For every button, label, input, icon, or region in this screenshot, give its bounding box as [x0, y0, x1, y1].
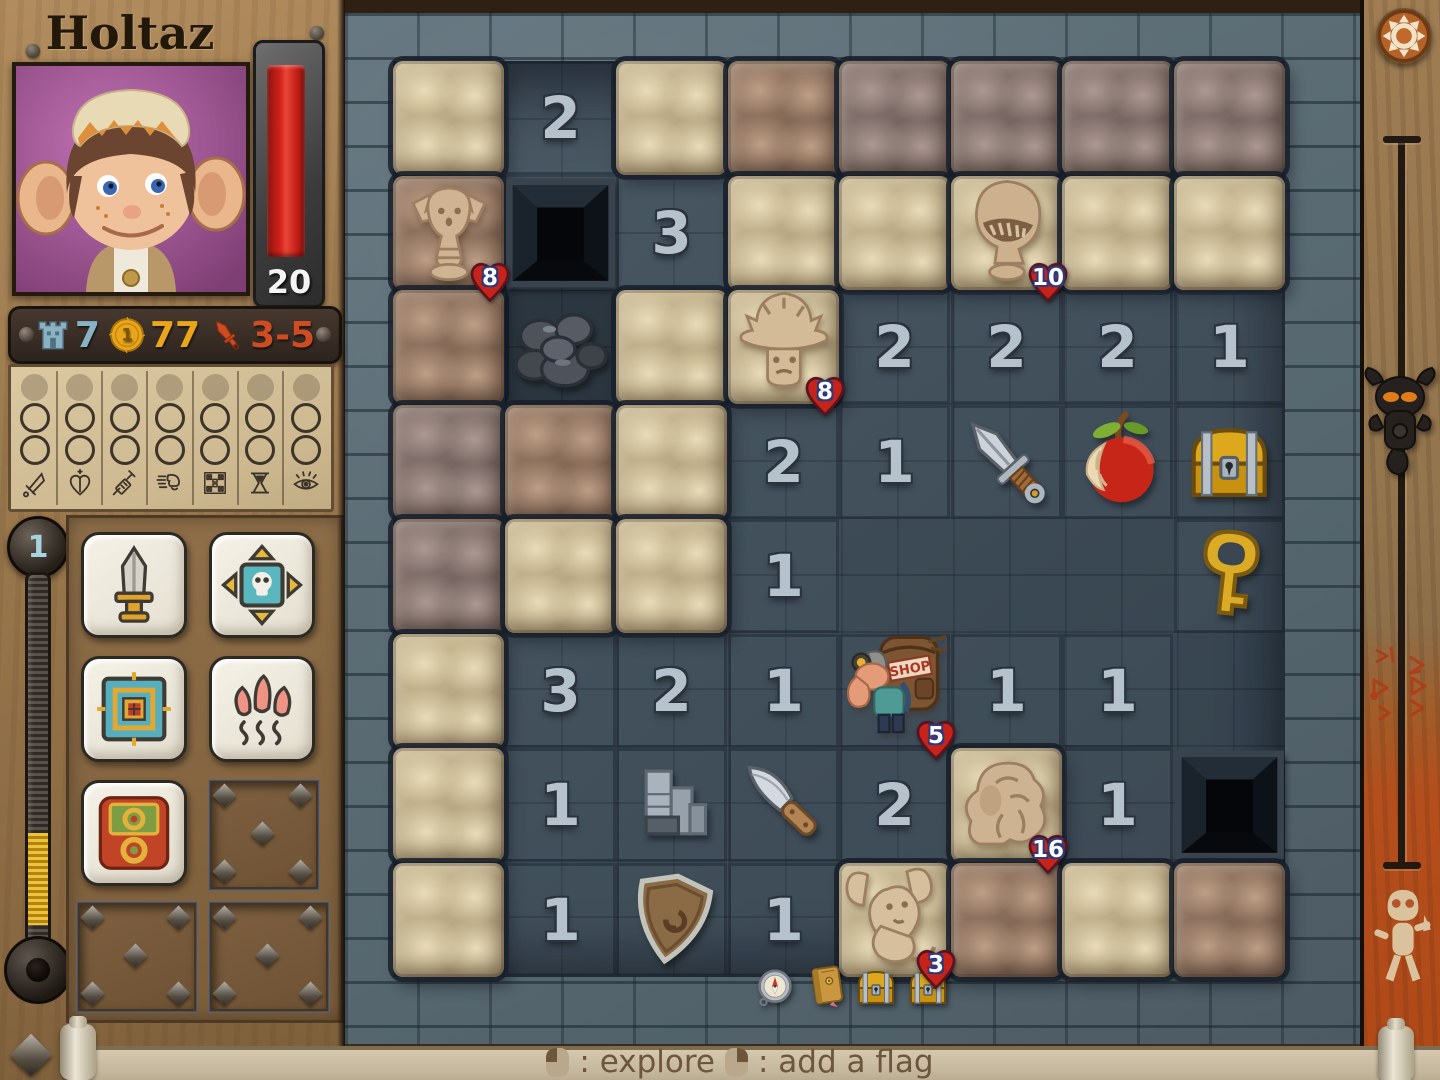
dagger-icon — [951, 405, 1062, 519]
adjacency-number: 1 — [763, 662, 803, 720]
adjacency-number: 1 — [1209, 318, 1249, 376]
skill-track-health-skill-icon — [58, 371, 103, 505]
tile-r5c7-empty — [1062, 519, 1173, 633]
tile-r2c6-monster-helm[interactable]: 10 — [951, 176, 1062, 290]
empty-card-slot — [209, 902, 329, 1012]
adjacency-number: 1 — [986, 662, 1026, 720]
skill-dot-ghost — [66, 374, 93, 401]
pyramid-stud-icon — [288, 859, 312, 883]
demon-slider-handle[interactable] — [1362, 366, 1438, 486]
tile-r3c4-monster-mush[interactable]: 8 — [728, 290, 839, 404]
tile-r7c3-item-stairs[interactable] — [616, 748, 727, 862]
tile-r2c7-hidden[interactable] — [1062, 176, 1173, 290]
tile-r7c1-hidden[interactable] — [393, 748, 504, 862]
skill-dot-ghost — [156, 374, 183, 401]
target-skill-card[interactable] — [81, 656, 187, 762]
tile-r2c5-hidden[interactable] — [839, 176, 950, 290]
skill-track-trap-skill-icon — [194, 371, 239, 505]
hp-badge: 5 — [912, 718, 960, 762]
pit-icon — [505, 176, 616, 290]
skill-dot — [291, 435, 321, 465]
skill-track-vision-skill-icon — [284, 371, 329, 505]
xp-rod-end-knob — [4, 936, 72, 1004]
controls-hint: : explore : add a flag — [420, 1044, 1060, 1080]
tile-r5c5-empty — [839, 519, 950, 633]
speed-skill-icon — [153, 468, 187, 498]
chalk-doll-icon — [1374, 888, 1432, 994]
tile-r3c5-number: 2 — [839, 290, 950, 404]
tile-r1c5-hidden[interactable] — [839, 61, 950, 175]
tile-r7c6-monster-troll[interactable]: 16 — [951, 748, 1062, 862]
skill-dot-ghost — [247, 374, 274, 401]
settings-gear-button[interactable] — [1376, 8, 1432, 64]
health-bar: 20 — [253, 40, 325, 308]
hp-badge: 3 — [912, 947, 960, 991]
hp-badge: 8 — [466, 260, 514, 304]
empty-card-slot — [77, 902, 197, 1012]
skill-track-potion-skill-icon — [103, 371, 148, 505]
tile-r6c1-hidden[interactable] — [393, 634, 504, 748]
tile-r7c2-number: 1 — [505, 748, 616, 862]
empty-card-slot — [209, 780, 319, 890]
tile-r6c8-empty — [1174, 634, 1285, 748]
adjacency-number: 2 — [874, 318, 914, 376]
adjacency-number: 2 — [1097, 318, 1137, 376]
claw-skill-card[interactable] — [209, 656, 315, 762]
tile-r5c4-number: 1 — [728, 519, 839, 633]
skill-dot — [200, 435, 230, 465]
tile-r4c5-number: 1 — [839, 405, 950, 519]
tile-r6c6-number: 1 — [951, 634, 1062, 748]
skill-dot — [200, 403, 230, 433]
tile-r8c5-monster-rat[interactable]: 3 — [839, 863, 950, 977]
tile-r1c3-hidden[interactable] — [616, 61, 727, 175]
gold-stat: 1 77 — [108, 315, 200, 356]
tile-r2c4-hidden[interactable] — [728, 176, 839, 290]
pyramid-stud-icon — [288, 783, 312, 807]
skill-dot — [245, 403, 275, 433]
tile-r4c2-hidden[interactable] — [505, 405, 616, 519]
tile-r4c3-hidden[interactable] — [616, 405, 727, 519]
tile-r4c1-hidden[interactable] — [393, 405, 504, 519]
tile-r6c2-number: 3 — [505, 634, 616, 748]
add-flag-hint-label: : add a flag — [758, 1044, 934, 1080]
adjacency-number: 1 — [1097, 776, 1137, 834]
defense-value: 7 — [75, 315, 100, 356]
pyramid-stud-icon — [298, 981, 322, 1005]
nail-icon — [26, 44, 40, 58]
sword-skill-card[interactable] — [81, 532, 187, 638]
tile-r2c3-number: 3 — [616, 176, 727, 290]
pyramid-stud-icon — [212, 783, 236, 807]
dagger-icon — [208, 316, 246, 354]
nail-icon — [310, 26, 324, 40]
skill-dot — [155, 435, 185, 465]
skill-dot — [20, 403, 50, 433]
skill-dot-ghost — [111, 374, 138, 401]
skill-dot — [65, 403, 95, 433]
skill-dot-ghost — [202, 374, 229, 401]
skill-dot — [20, 435, 50, 465]
gold-value: 77 — [150, 315, 200, 356]
rune-scribbles-icon — [1366, 640, 1436, 740]
skill-track-speed-skill-icon — [148, 371, 193, 505]
tile-r8c4-number: 1 — [728, 863, 839, 977]
tile-r3c2-rocks[interactable] — [505, 290, 616, 404]
shield-icon — [616, 863, 727, 977]
tile-r8c7-hidden[interactable] — [1062, 863, 1173, 977]
defense-stat: 7 — [35, 315, 100, 356]
skill-dot — [155, 403, 185, 433]
adjacency-number: 2 — [651, 662, 691, 720]
tile-r3c6-number: 2 — [951, 290, 1062, 404]
tile-r5c2-hidden[interactable] — [505, 519, 616, 633]
tile-r8c2-number: 1 — [505, 863, 616, 977]
pyramid-stud-icon — [255, 943, 279, 967]
skill-cards-panel — [66, 515, 344, 1023]
adjacency-number: 2 — [540, 89, 580, 147]
tile-r4c7-item-apple[interactable] — [1062, 405, 1173, 519]
beast-compass-skill-card[interactable] — [209, 532, 315, 638]
tile-r6c7-number: 1 — [1062, 634, 1173, 748]
adjacency-number: 3 — [651, 204, 691, 262]
stats-bar: 7 1 77 3-5 — [8, 306, 342, 364]
skill-tracker-panel — [8, 364, 334, 512]
pyramid-stud-icon — [212, 981, 236, 1005]
tile-r8c1-hidden[interactable] — [393, 863, 504, 977]
pyramid-stud-icon — [212, 905, 236, 929]
tile-r3c1-hidden[interactable] — [393, 290, 504, 404]
skill-dot-ghost — [293, 374, 320, 401]
potion-skill-icon — [108, 468, 142, 498]
xp-progress-fill — [28, 833, 48, 925]
pyramid-stud-icon — [123, 943, 147, 967]
rivet-icon — [316, 327, 331, 342]
rivet-icon — [19, 327, 34, 342]
svg-text:1: 1 — [121, 325, 133, 345]
trap-skill-icon — [198, 468, 232, 498]
left-mouse-icon — [546, 1048, 569, 1077]
pyramid-stud-icon — [80, 905, 104, 929]
tile-r8c8-hidden[interactable] — [1174, 863, 1285, 977]
skill-dot — [291, 403, 321, 433]
health-skill-icon — [63, 468, 97, 498]
tile-r8c6-hidden[interactable] — [951, 863, 1062, 977]
scroll-roll-left — [60, 1024, 96, 1080]
dungeon-board: 2831082221211321SHOP51112161113 — [345, 0, 1360, 1080]
adjacency-number: 2 — [874, 776, 914, 834]
tile-r2c2-pit — [505, 176, 616, 290]
explore-hint-label: : explore — [579, 1044, 715, 1080]
tile-r8c3-item-shield[interactable] — [616, 863, 727, 977]
adjacency-number: 2 — [986, 318, 1026, 376]
skill-dot-ghost — [21, 374, 48, 401]
tile-r7c7-number: 1 — [1062, 748, 1173, 862]
adjacency-number: 1 — [1097, 662, 1137, 720]
right-mouse-icon — [725, 1048, 748, 1077]
character-panel: Holtaz — [0, 0, 345, 1080]
scroll-track-top-cap — [1383, 136, 1421, 143]
tile-r4c4-number: 2 — [728, 405, 839, 519]
adjacency-number: 3 — [540, 662, 580, 720]
loot-book-icon[interactable] — [803, 962, 851, 1010]
skill-track-attack-skill-icon — [13, 371, 58, 505]
knife-icon — [728, 748, 839, 862]
attack-stat: 3-5 — [208, 315, 315, 356]
skill-track-time-skill-icon — [239, 371, 284, 505]
attack-value: 3-5 — [250, 315, 315, 356]
adjacency-number: 1 — [763, 547, 803, 605]
relic-skill-card[interactable] — [81, 780, 187, 886]
time-skill-icon — [243, 468, 277, 498]
stairs-icon — [616, 748, 727, 862]
tile-r1c2-number: 2 — [505, 61, 616, 175]
tile-r4c6-item-dagger[interactable] — [951, 405, 1062, 519]
adjacency-number: 1 — [540, 776, 580, 834]
skill-dot — [110, 435, 140, 465]
level-value: 1 — [28, 530, 49, 565]
tile-r3c7-number: 2 — [1062, 290, 1173, 404]
pyramid-stud-icon — [212, 859, 236, 883]
hp-badge: 8 — [801, 374, 849, 418]
adjacency-number: 1 — [874, 433, 914, 491]
chest-icon — [1174, 405, 1285, 519]
tile-r7c4-item-knife[interactable] — [728, 748, 839, 862]
adjacency-number: 1 — [540, 891, 580, 949]
pyramid-stud-icon — [166, 981, 190, 1005]
skill-dot — [245, 435, 275, 465]
tile-r7c5-number: 2 — [839, 748, 950, 862]
tile-r3c3-hidden[interactable] — [616, 290, 727, 404]
apple-icon — [1062, 405, 1173, 519]
rocks-icon — [505, 290, 616, 404]
tile-r5c6-empty — [951, 519, 1062, 633]
tile-r4c8-item-chest[interactable] — [1174, 405, 1285, 519]
tile-r6c4-number: 1 — [728, 634, 839, 748]
vision-skill-icon — [289, 468, 323, 498]
scroll-track-bottom-cap — [1383, 862, 1421, 869]
scroll-roll-right — [1378, 1026, 1414, 1080]
pyramid-stud-icon — [250, 821, 274, 845]
attack-skill-icon — [18, 468, 52, 498]
tile-r5c1-hidden[interactable] — [393, 519, 504, 633]
key-icon — [1174, 519, 1285, 633]
tile-r1c8-hidden[interactable] — [1174, 61, 1285, 175]
pyramid-stud-icon — [166, 905, 190, 929]
tile-r5c8-item-key[interactable] — [1174, 519, 1285, 633]
tile-r1c7-hidden[interactable] — [1062, 61, 1173, 175]
avatar — [12, 62, 250, 296]
tile-r2c8-hidden[interactable] — [1174, 176, 1285, 290]
tile-r1c4-hidden[interactable] — [728, 61, 839, 175]
board-top-edge — [345, 0, 1360, 14]
tile-r6c5-monster-shop[interactable]: SHOP5 — [839, 634, 950, 748]
tile-r1c1-hidden[interactable] — [393, 61, 504, 175]
tower-icon — [35, 317, 71, 353]
level-badge: 1 — [7, 516, 69, 578]
tile-r5c3-hidden[interactable] — [616, 519, 727, 633]
loot-compass-icon[interactable] — [753, 966, 797, 1010]
skill-dot — [110, 403, 140, 433]
hp-badge: 10 — [1024, 260, 1072, 304]
game-screen: Holtaz — [0, 0, 1440, 1080]
pit-icon — [1174, 748, 1285, 862]
adjacency-number: 2 — [763, 433, 803, 491]
tile-r3c8-number: 1 — [1174, 290, 1285, 404]
health-bar-fill — [267, 65, 305, 257]
tile-r6c3-number: 2 — [616, 634, 727, 748]
pyramid-stud-icon — [298, 905, 322, 929]
pyramid-stud-icon — [80, 981, 104, 1005]
hp-badge: 16 — [1024, 832, 1072, 876]
xp-progress-rod — [25, 572, 51, 944]
scroll-track — [1398, 140, 1405, 866]
tile-r2c1-monster-statue[interactable]: 8 — [393, 176, 504, 290]
coin-icon: 1 — [108, 316, 146, 354]
loot-chest-icon[interactable] — [851, 962, 901, 1012]
adjacency-number: 1 — [763, 891, 803, 949]
tile-r7c8-pit — [1174, 748, 1285, 862]
tile-r1c6-hidden[interactable] — [951, 61, 1062, 175]
health-value: 20 — [256, 263, 322, 301]
skill-dot — [65, 435, 95, 465]
